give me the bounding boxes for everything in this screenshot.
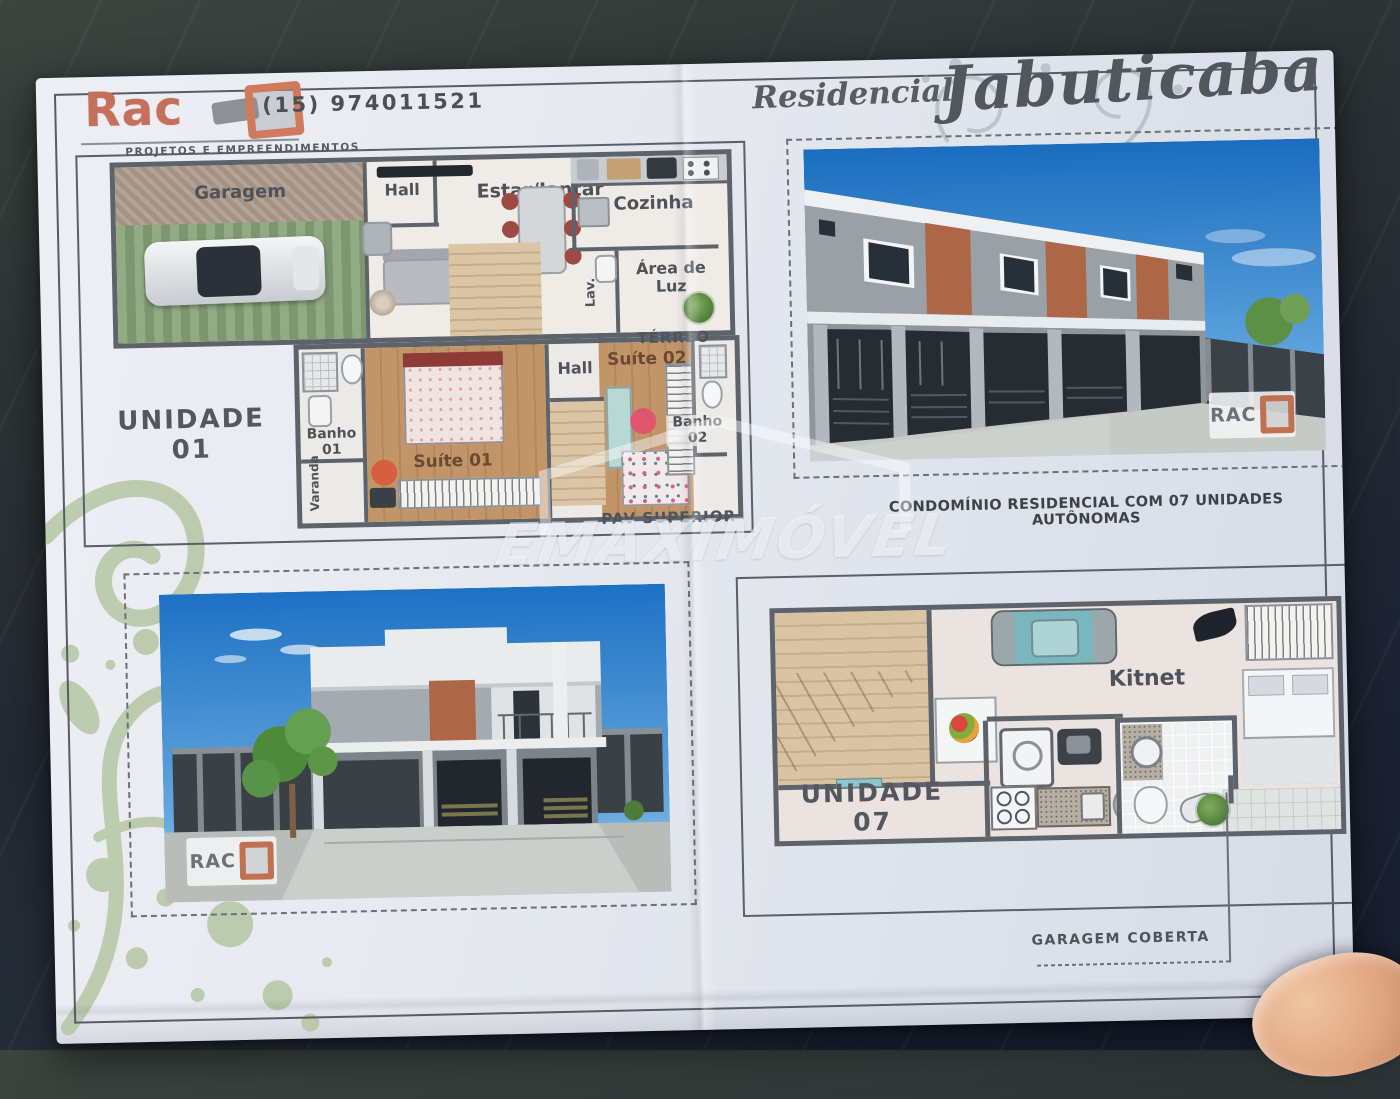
stairs-icon [550, 401, 606, 506]
sink-basin [1066, 735, 1090, 754]
shower-icon [302, 352, 339, 393]
wall [1228, 775, 1234, 803]
garagem-coberta-label: GARAGEM COBERTA [1003, 928, 1239, 949]
patio-tiles [1222, 787, 1341, 832]
room-label-banho02: Banho 02 [666, 414, 729, 447]
toilet-icon [1133, 786, 1168, 825]
rac-watermark-text: RAC [189, 850, 236, 873]
car-top-view-icon [144, 235, 326, 306]
blanket [1243, 735, 1336, 785]
double-bed-icon [403, 351, 505, 445]
double-bed-icon [1242, 667, 1337, 785]
pillow-icon [1248, 675, 1284, 696]
armchair-icon [362, 222, 393, 257]
rac-watermark: RAC [1209, 391, 1296, 439]
wardrobe-icon [397, 476, 542, 509]
toilet-icon [341, 354, 364, 384]
room-label-banho01: Banho 01 [300, 426, 363, 459]
counter-sink [1080, 792, 1105, 821]
wall [693, 452, 727, 457]
condominio-caption: CONDOMÍNIO RESIDENCIAL COM 07 UNIDADES A… [843, 490, 1330, 533]
garage-area: Garagem [115, 162, 367, 343]
toilet-icon [701, 380, 723, 408]
house-render-image: RAC [159, 584, 672, 903]
laundry-sink-icon [595, 255, 618, 283]
room-label-suite01: Suíte 01 [393, 451, 513, 473]
nightstand-icon [370, 488, 396, 509]
phone-number: (15) 974011521 [262, 88, 485, 117]
room-label-cozinha: Cozinha [593, 193, 713, 216]
rac-watermark-text: RAC [1210, 404, 1257, 427]
rac-watermark-icon [1260, 395, 1295, 434]
tv-icon [377, 165, 473, 178]
room-label-hall2: Hall [547, 359, 603, 378]
appliance-icon [577, 197, 610, 228]
bed-headboard [403, 351, 503, 367]
pillow-icon [1292, 674, 1328, 695]
floorplan-terreo: Garagem Hall Estar/Jantar Coz [109, 149, 735, 349]
rac-watermark: RAC [186, 836, 277, 886]
car-top-view-icon [990, 608, 1117, 667]
unit07-label: UNIDADE 07 [779, 776, 965, 838]
rac-logo-text: Rac [84, 81, 184, 138]
stairs-icon [774, 610, 930, 785]
terreo-label: TÉRREO [637, 328, 710, 348]
counter-board [607, 158, 641, 180]
stove-icon [682, 156, 718, 180]
car-roof [1031, 619, 1080, 658]
rac-watermark-icon [239, 841, 274, 880]
shower-icon [699, 344, 728, 379]
bathroom-sink-icon [308, 395, 333, 428]
car-roof [196, 245, 262, 297]
sink-icon [1057, 728, 1102, 765]
room-label-kitnet: Kitnet [1082, 666, 1213, 693]
room-label-area-de-luz: Área de Luz [623, 258, 720, 296]
garage-note-underline [1037, 960, 1231, 966]
room-label-varanda: Varanda [307, 467, 322, 511]
floorplan-pav-superior: Banho 01 Varanda Suíte 01 Hall Suíte 02 … [293, 335, 743, 529]
wall [987, 714, 1123, 722]
stove-icon [990, 786, 1037, 831]
brochure-page: Rac PROJETOS E EMPREENDIMENTOS (15) 9740… [36, 50, 1355, 1044]
fridge-icon [577, 159, 599, 180]
stairs-icon [448, 242, 542, 336]
unit01-label: UNIDADE 01 [101, 403, 282, 467]
washing-machine-icon [999, 727, 1054, 788]
building-render-image: RAC [803, 138, 1326, 461]
title-jabuticaba: Jabuticaba [940, 50, 1325, 126]
room-label-garagem: Garagem [155, 181, 325, 205]
pav-superior-label: PAV SUPERIOR [601, 507, 736, 528]
sink-icon [647, 157, 677, 179]
car-hood [292, 246, 320, 291]
surfboard-icon [1190, 607, 1239, 642]
room-label-hall: Hall [371, 181, 433, 200]
wardrobe-icon [1244, 603, 1333, 661]
fruit-bowl-icon [949, 713, 980, 744]
washer-drum [1012, 740, 1043, 771]
